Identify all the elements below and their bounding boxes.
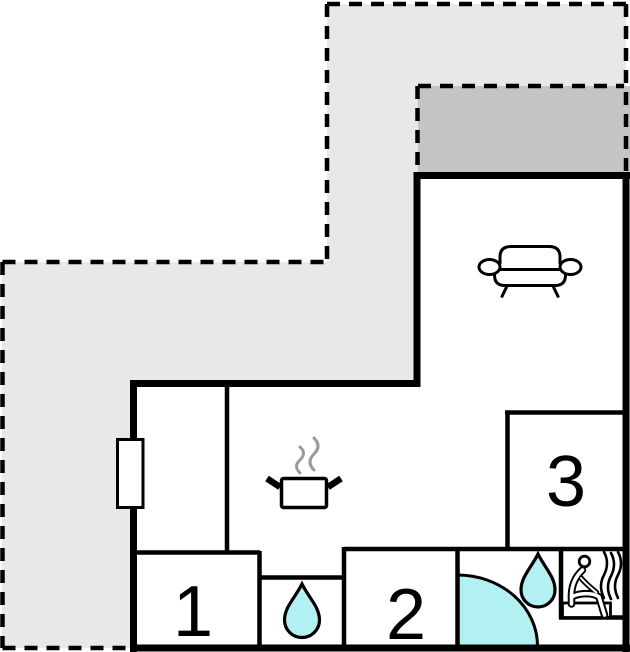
room-3-label: 3 [546,442,586,522]
room-2-label: 2 [386,575,426,652]
balcony-area [418,86,630,176]
couch-body [495,247,566,286]
window-marker-icon [118,440,144,508]
pot-body [282,479,327,508]
couch-armrest-left [479,260,500,275]
room-1-label: 1 [173,572,213,652]
couch-armrest-right [560,260,581,275]
floorplan: 1 2 3 [0,0,630,652]
floorplan-canvas: 1 2 3 [0,0,630,652]
sauna-person-head [579,556,590,567]
